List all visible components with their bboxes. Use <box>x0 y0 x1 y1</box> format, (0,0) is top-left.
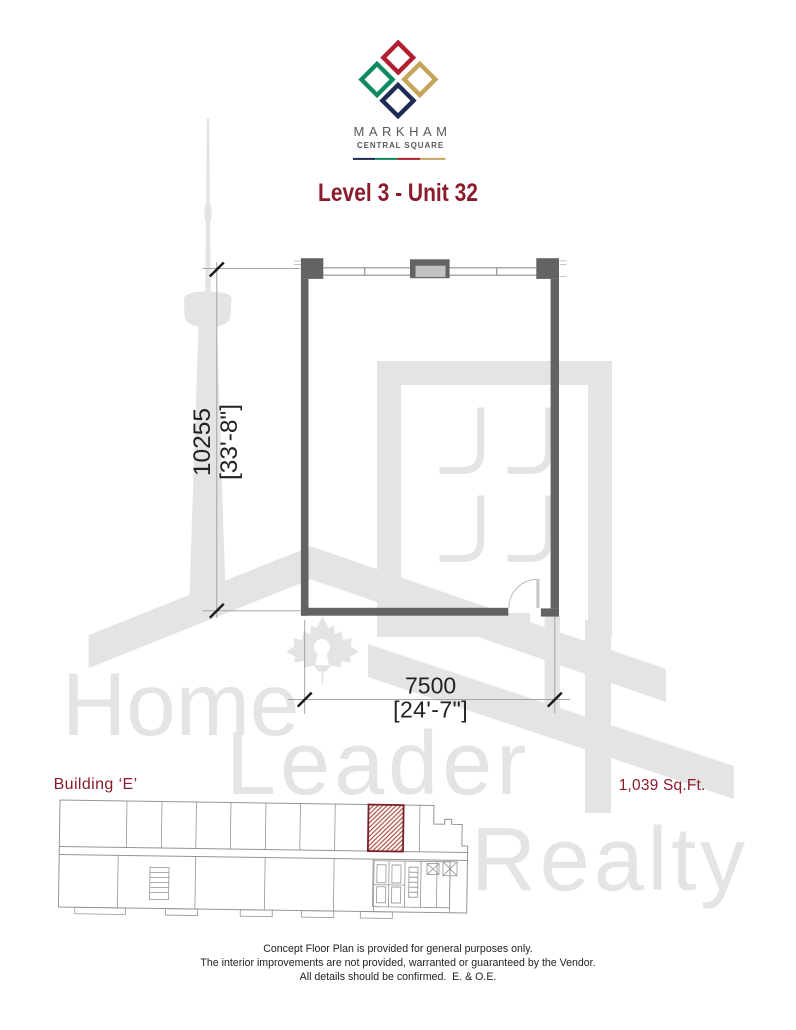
svg-text:Leader: Leader <box>226 714 530 814</box>
svg-text:Realty: Realty <box>471 810 749 910</box>
